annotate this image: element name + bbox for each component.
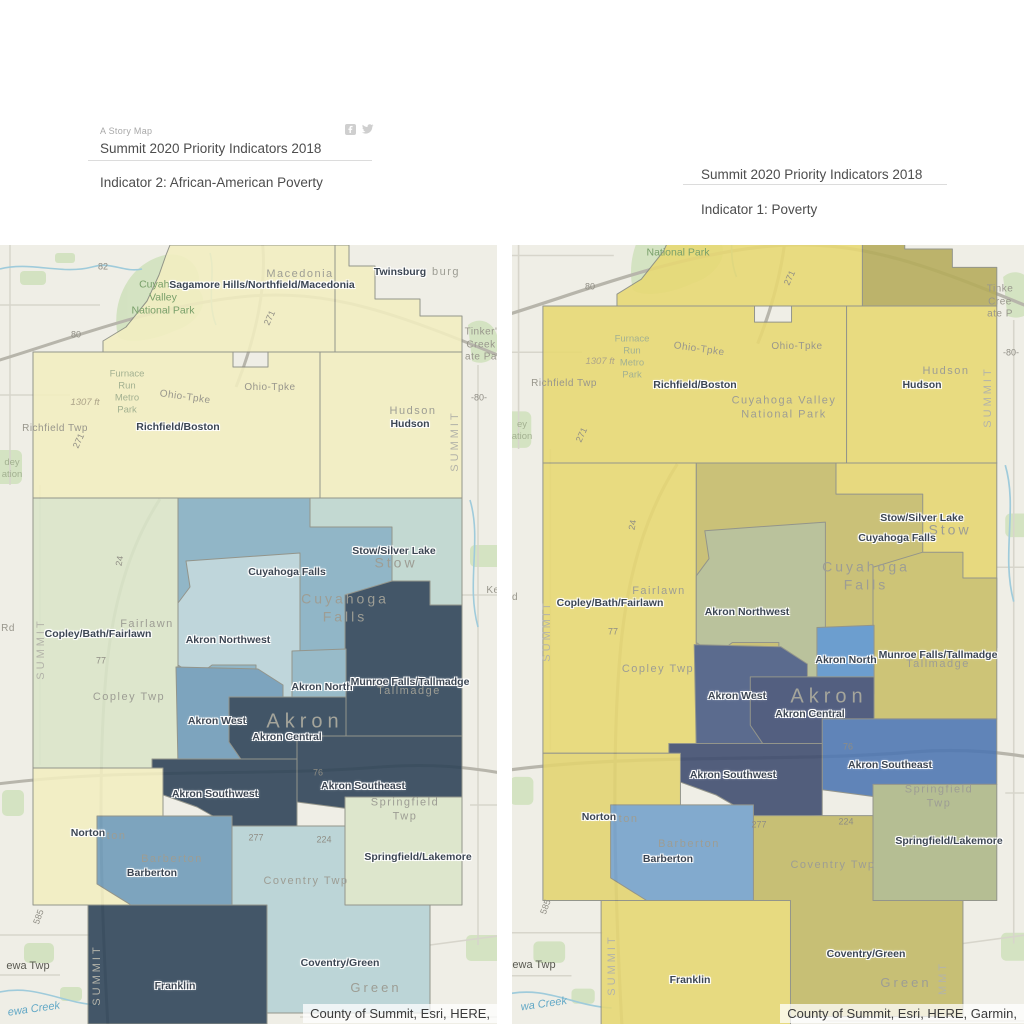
page-title: Summit 2020 Priority Indicators 2018 — [100, 141, 321, 156]
region-franklin[interactable] — [601, 901, 790, 1024]
choropleth-layer — [543, 245, 997, 1024]
basemap — [0, 245, 497, 1024]
region-barberton[interactable] — [97, 816, 232, 905]
region-richfield[interactable] — [33, 352, 320, 498]
region-richfield[interactable] — [543, 306, 847, 463]
map-canvas-right[interactable]: Richfield/BostonHudsonCopley/Bath/Fairla… — [512, 245, 1024, 1024]
map-canvas-left[interactable]: Sagamore Hills/Northfield/MacedoniaTwins… — [0, 245, 497, 1024]
region-springfield[interactable] — [873, 784, 997, 900]
region-franklin[interactable] — [88, 905, 267, 1024]
region-copley[interactable] — [543, 463, 696, 753]
header-divider-right — [683, 184, 947, 185]
indicator-subtitle-right: Indicator 1: Poverty — [701, 202, 817, 217]
map-attribution-right: County of Summit, Esri, HERE, Garmin, — [780, 1004, 1024, 1023]
region-barberton[interactable] — [611, 805, 754, 901]
story-map-panel-right: Summit 2020 Priority Indicators 2018 Ind… — [512, 0, 1024, 1024]
region-hudson[interactable] — [320, 352, 462, 498]
region-copley[interactable] — [33, 498, 178, 768]
region-springfield[interactable] — [345, 797, 462, 905]
story-map-kicker: A Story Map — [100, 126, 152, 136]
map-attribution-left: County of Summit, Esri, HERE, — [303, 1004, 497, 1023]
indicator-subtitle: Indicator 2: African-American Poverty — [100, 175, 323, 190]
story-map-panel-left: A Story Map Summit 2020 Priority Indicat… — [0, 0, 497, 1024]
page-title-right: Summit 2020 Priority Indicators 2018 — [701, 167, 922, 182]
header-divider — [88, 160, 372, 161]
region-hudson[interactable] — [847, 306, 997, 463]
twitter-icon[interactable] — [361, 124, 374, 135]
basemap — [512, 245, 1024, 1024]
facebook-icon[interactable] — [345, 124, 356, 135]
